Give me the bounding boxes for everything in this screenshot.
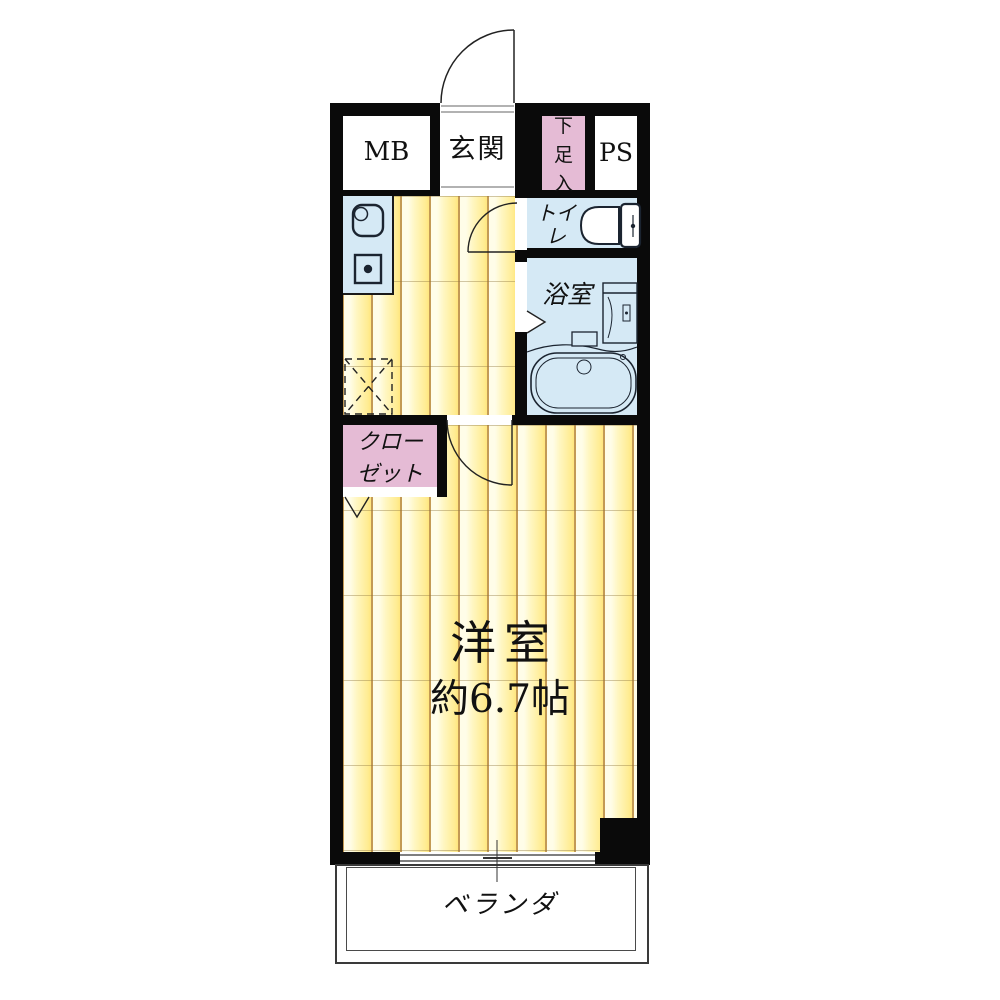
corner-pillar bbox=[600, 818, 650, 865]
shoe-cabinet-char-2: 足 bbox=[554, 140, 573, 167]
kitchen-counter bbox=[343, 196, 394, 295]
main-room-size-label: 約6.7帖 bbox=[380, 676, 620, 724]
main-room-name-label: 洋室 bbox=[380, 616, 620, 670]
floor-plan: MB 玄関 下 足 入 PS トイレ 浴室 クロー ゼット 洋室 約6.7帖 ベ… bbox=[0, 0, 1000, 1000]
toilet-door-opening bbox=[515, 198, 527, 250]
shoe-cabinet-char-1: 下 bbox=[554, 111, 573, 138]
bath-door-opening bbox=[515, 262, 527, 332]
entrance-door-icon bbox=[441, 30, 514, 103]
toilet-label: トイレ bbox=[528, 204, 584, 246]
closet-side-wall bbox=[437, 415, 447, 497]
shoe-cabinet-char-3: 入 bbox=[554, 169, 573, 196]
closet-label-line2: ゼット bbox=[357, 456, 423, 488]
closet-label: クロー ゼット bbox=[343, 428, 437, 484]
shoe-cabinet-label: 下 足 入 bbox=[542, 117, 585, 189]
pipe-space-label: PS bbox=[595, 116, 637, 190]
closet-label-line1: クロー bbox=[357, 424, 423, 456]
main-room-door-opening bbox=[447, 415, 512, 425]
entrance-label: 玄関 bbox=[440, 118, 515, 182]
balcony-label: ベランダ bbox=[400, 888, 600, 924]
closet-door-opening bbox=[343, 487, 437, 497]
meter-box-label: MB bbox=[343, 116, 430, 190]
bath-label: 浴室 bbox=[536, 277, 598, 313]
